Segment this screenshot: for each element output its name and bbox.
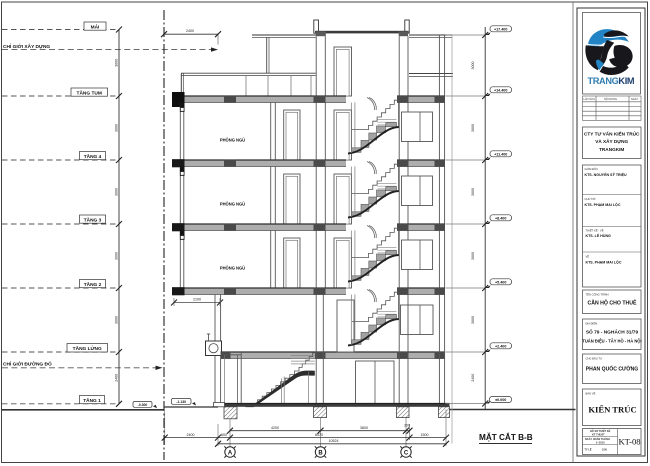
svg-text:KTS. LÊ HÙNG: KTS. LÊ HÙNG bbox=[586, 233, 612, 238]
svg-text:TẦNG 4: TẦNG 4 bbox=[84, 153, 102, 160]
svg-text:600: 600 bbox=[221, 433, 227, 437]
svg-text:KTS. PHẠM MAI LỘC: KTS. PHẠM MAI LỘC bbox=[586, 259, 622, 264]
svg-text:MÁI: MÁI bbox=[91, 23, 100, 30]
svg-text:CTY TƯ VẤN KIẾN TRÚC: CTY TƯ VẤN KIẾN TRÚC bbox=[584, 131, 640, 137]
svg-text:10524: 10524 bbox=[329, 439, 339, 443]
svg-text:KT-08: KT-08 bbox=[618, 437, 640, 447]
svg-text:TRANGKIM: TRANGKIM bbox=[588, 76, 635, 86]
svg-text:3000: 3000 bbox=[114, 188, 118, 196]
svg-text:TẦNG 3: TẦNG 3 bbox=[84, 216, 102, 223]
svg-text:+2.400: +2.400 bbox=[495, 345, 506, 349]
svg-text:1/50: 1/50 bbox=[602, 449, 607, 452]
svg-text:3000: 3000 bbox=[114, 252, 118, 260]
svg-text:2400: 2400 bbox=[187, 433, 195, 437]
svg-text:2400: 2400 bbox=[114, 374, 118, 382]
svg-text:+11.400: +11.400 bbox=[494, 153, 507, 157]
svg-text:VÀ XÂY DỰNG: VÀ XÂY DỰNG bbox=[595, 138, 628, 144]
svg-text:3000: 3000 bbox=[471, 62, 475, 70]
svg-text:2400: 2400 bbox=[471, 374, 475, 382]
svg-text:KIẾN TRÚC: KIẾN TRÚC bbox=[588, 405, 636, 415]
svg-text:9 -2010: 9 -2010 bbox=[596, 442, 605, 445]
svg-text:+14.400: +14.400 bbox=[494, 89, 507, 93]
svg-text:3000: 3000 bbox=[471, 124, 475, 132]
svg-text:PHAN QUỐC CƯỜNG: PHAN QUỐC CƯỜNG bbox=[586, 365, 638, 373]
svg-text:SỐ 79 - NGHÁCH 31/79: SỐ 79 - NGHÁCH 31/79 bbox=[586, 328, 639, 335]
svg-text:1500: 1500 bbox=[421, 433, 429, 437]
svg-text:2400: 2400 bbox=[186, 29, 194, 33]
svg-text:±0.000: ±0.000 bbox=[495, 398, 506, 402]
svg-text:C: C bbox=[404, 450, 409, 456]
svg-text:3000: 3000 bbox=[114, 59, 118, 67]
svg-text:-0.300: -0.300 bbox=[138, 403, 148, 407]
svg-text:+17.400: +17.400 bbox=[494, 28, 507, 32]
svg-text:TẦNG 2: TẦNG 2 bbox=[84, 281, 102, 288]
svg-text:TẦNG TUM: TẦNG TUM bbox=[77, 89, 102, 96]
svg-text:TẦNG 1: TẦNG 1 bbox=[83, 397, 101, 404]
svg-text:4200: 4200 bbox=[271, 426, 279, 430]
svg-text:TẦNG LỬNG: TẦNG LỬNG bbox=[73, 345, 102, 352]
svg-text:KTS. NGUYỄN SỸ TRIỆU: KTS. NGUYỄN SỸ TRIỆU bbox=[585, 172, 628, 177]
svg-text:CĂN HỘ CHO THUÊ: CĂN HỘ CHO THUÊ bbox=[588, 299, 638, 307]
svg-text:3800: 3800 bbox=[360, 426, 368, 430]
svg-text:3000: 3000 bbox=[471, 316, 475, 324]
svg-text:TRANGKIM: TRANGKIM bbox=[599, 147, 624, 152]
svg-text:TUẤN ĐIỆU - TÂY HỒ - HÀ NỘI: TUẤN ĐIỆU - TÂY HỒ - HÀ NỘI bbox=[582, 338, 641, 343]
svg-text:3000: 3000 bbox=[471, 188, 475, 196]
svg-text:-1.130: -1.130 bbox=[176, 400, 186, 404]
svg-text:KỸ THUẬT: KỸ THUẬT bbox=[592, 433, 605, 436]
svg-text:PHÒNG NGỦ: PHÒNG NGỦ bbox=[220, 266, 245, 271]
svg-text:+5.400: +5.400 bbox=[495, 281, 506, 285]
svg-text:KTS. PHẠM MAI LỘC: KTS. PHẠM MAI LỘC bbox=[585, 202, 621, 207]
svg-text:MẶT CẮT B-B: MẶT CẮT B-B bbox=[479, 432, 533, 442]
svg-text:3000: 3000 bbox=[114, 124, 118, 132]
svg-text:+8.400: +8.400 bbox=[495, 217, 506, 221]
svg-text:300: 300 bbox=[404, 424, 410, 428]
svg-text:B: B bbox=[318, 450, 323, 456]
svg-text:NGÀY: NGÀY bbox=[631, 97, 639, 101]
svg-text:PHÒNG NGỦ: PHÒNG NGỦ bbox=[220, 138, 245, 143]
svg-text:8570: 8570 bbox=[315, 433, 323, 437]
svg-text:3000: 3000 bbox=[471, 252, 475, 260]
svg-text:NGÀY HOÀN THÀNH: NGÀY HOÀN THÀNH bbox=[585, 438, 610, 441]
svg-text:TỶ LỆ: TỶ LỆ bbox=[585, 449, 592, 452]
svg-text:A: A bbox=[228, 450, 233, 456]
svg-text:PHÒNG NGỦ: PHÒNG NGỦ bbox=[220, 202, 245, 207]
svg-text:2100: 2100 bbox=[193, 298, 201, 302]
svg-text:3000: 3000 bbox=[114, 316, 118, 324]
